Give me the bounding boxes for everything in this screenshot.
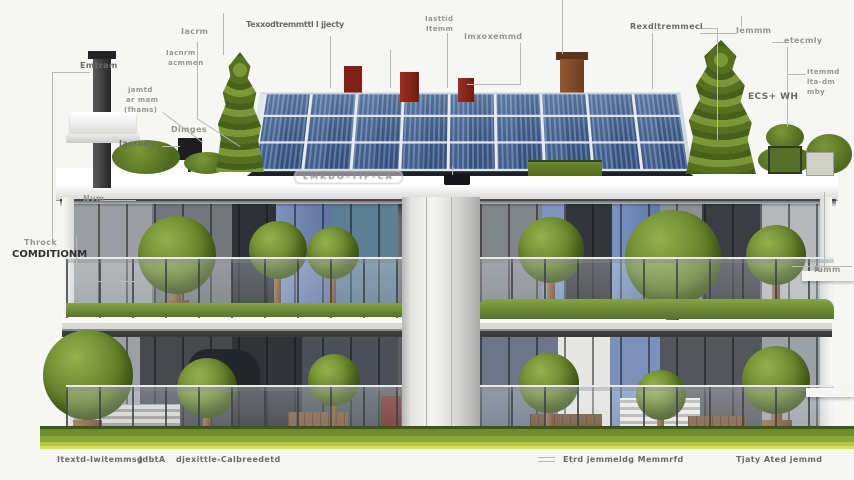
roof-planter: [528, 160, 602, 176]
building-illustration: [0, 0, 854, 480]
solar-panel-array: [247, 93, 693, 176]
leader-line: [717, 28, 718, 140]
label-left-b2: acmmen: [168, 59, 204, 68]
white-rail: [806, 388, 854, 397]
label-right-2: lta-dm: [807, 78, 835, 87]
label-topright-b: Iemmm: [736, 26, 771, 36]
label-condominium: COMDITIONM: [12, 250, 87, 260]
leader-line: [538, 461, 555, 462]
label-person: Throck: [24, 238, 57, 248]
leader-line: [700, 33, 737, 34]
label-topright-c: etecmly: [784, 36, 823, 46]
balcony-railing: [478, 385, 834, 432]
balcony-railing: [66, 385, 402, 432]
leader-line: [223, 13, 224, 55]
label-ecs: ECS+ WH: [748, 93, 798, 103]
label-roof-long: Texxodtremmttl I jjecty: [246, 20, 344, 30]
leader-line: [824, 192, 825, 266]
solar-panel-grid: [253, 94, 689, 171]
label-right-1: Itemmd: [807, 68, 840, 77]
leader-line: [390, 50, 391, 88]
label-bottom-2: JdbtA: [139, 455, 165, 465]
label-chimney: Emtram: [80, 61, 118, 71]
chimney-cap: [88, 51, 116, 59]
eco-building-diagram: Emtram Iacrm Iacnrm acmmen Texxodtremmtt…: [0, 0, 854, 480]
label-topright-a: Rexdltremmecl: [630, 22, 703, 32]
label-nym: Nym: [83, 194, 104, 204]
leader-line: [452, 166, 453, 175]
leader-line: [197, 42, 198, 118]
label-bottom-4: Etrd jemmeldg Memmrfd: [563, 455, 684, 465]
label-mid-3: (fhams): [124, 106, 157, 115]
label-dimges: Dimges: [171, 125, 207, 135]
leader-line: [52, 72, 53, 242]
roof-planter-box: [768, 146, 802, 174]
label-solar-caption: LMKDO–TIF–CA: [294, 170, 403, 184]
leader-line: [162, 146, 180, 147]
roof-vent-red: [458, 78, 474, 102]
leader-line: [652, 33, 653, 89]
label-left-a: Iacrm: [181, 27, 208, 37]
leader-line: [787, 74, 806, 75]
leader-line: [787, 47, 788, 127]
concrete-column: [402, 197, 480, 447]
label-bottom-5: Tjaty Ated jemmd: [736, 455, 822, 465]
leader-line: [76, 281, 138, 282]
balcony-grass: [66, 303, 402, 317]
label-mid-2: ar mam: [126, 96, 158, 105]
ground-grass: [40, 426, 854, 449]
label-bottom-3: djexittle-Calbreedetd: [176, 455, 281, 465]
label-topcenter-2: Itemm: [426, 25, 453, 34]
leader-line: [467, 84, 520, 85]
label-lumm: lumm: [814, 265, 841, 275]
balcony-grass: [478, 299, 834, 319]
label-mid-1: jamtd: [128, 86, 153, 95]
leader-line: [52, 72, 90, 73]
leader-line: [520, 43, 521, 85]
solar-junction-box: [444, 174, 470, 185]
leader-line: [447, 33, 448, 88]
leader-line: [100, 200, 136, 201]
leader-line: [330, 36, 331, 88]
label-topcenter-1: Iasttid: [425, 15, 453, 24]
label-iacrndy: Iacrndy: [119, 139, 156, 149]
leader-line: [562, 0, 563, 54]
label-right-3: mby: [807, 88, 825, 97]
label-topcenter-wide: Imxoxemmd: [464, 32, 523, 42]
label-left-b1: Iacnrm: [166, 49, 196, 58]
cypress-tree: [686, 40, 756, 174]
leader-line: [538, 457, 555, 458]
roof-utility-box: [806, 152, 834, 176]
roof-vent-red: [400, 72, 419, 102]
label-bottom-1: Itextd-Iwitemmsg: [57, 455, 143, 465]
